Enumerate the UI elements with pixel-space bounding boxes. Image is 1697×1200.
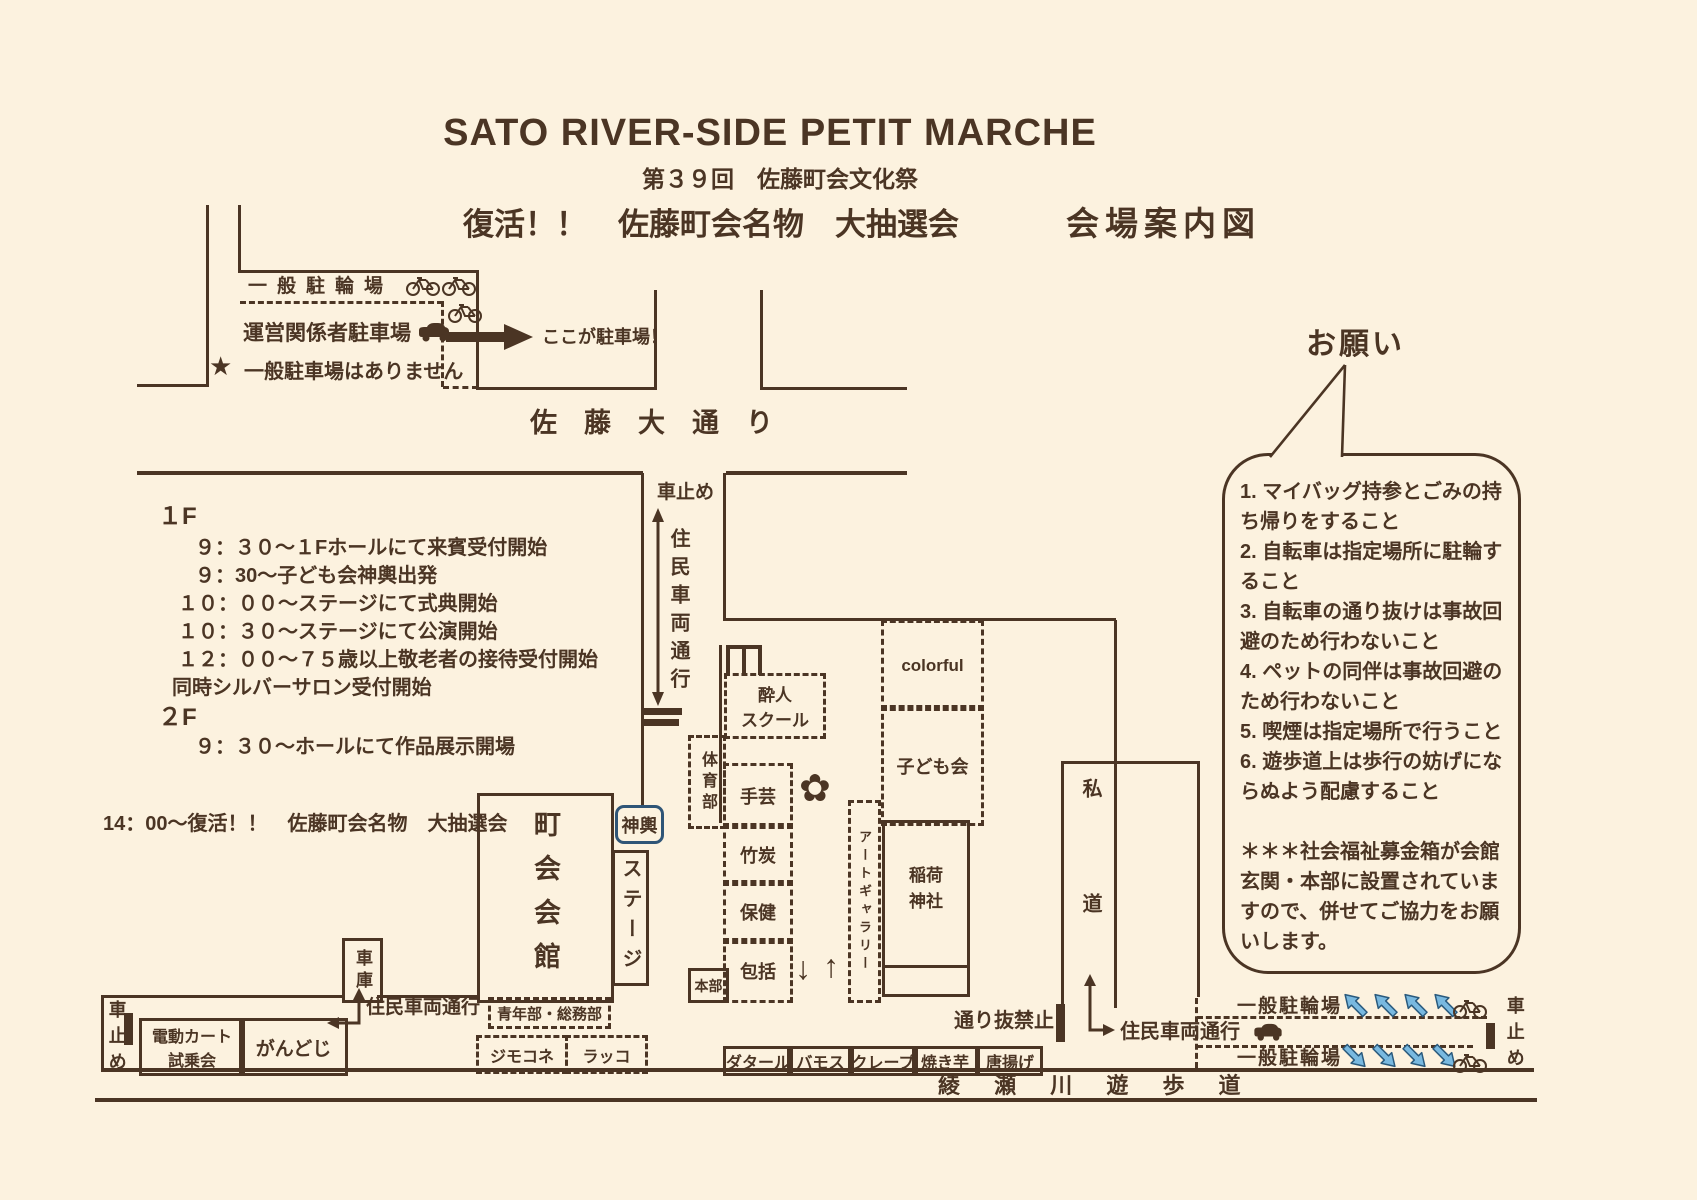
raffle-time-note: 14：00～復活！！ 佐藤町会名物 大抽選会 (103, 813, 508, 836)
schedule-line: ９：３０～１Fホールにて来賓受付開始 (195, 537, 547, 560)
request-line: 避のため行わないこと (1240, 627, 1516, 657)
bike-flow-arrow-icon (1340, 996, 1370, 1013)
mikoshi-label: 神輿 (622, 812, 658, 838)
road-line (641, 473, 644, 805)
road-line (137, 384, 208, 387)
art-gallery-booth: アートギャラリー (848, 800, 881, 1003)
booth-label: 手芸 (740, 783, 776, 809)
flower-icon: ✿ (799, 768, 831, 812)
request-line: ち帰りをすること (1240, 507, 1516, 537)
bubble-tail (1258, 360, 1358, 460)
stage-label: ステージ (616, 858, 645, 978)
request-line: ため行わないこと (1240, 687, 1516, 717)
request-line: ること (1240, 567, 1516, 597)
turn-arrow-icon (1072, 974, 1116, 1038)
inari-shrine-box: 稲荷 神社 (882, 820, 970, 997)
resident-traffic-label-left: 住民車両通行 (366, 997, 480, 1019)
bike-flow-arrow-icon (1400, 996, 1430, 1013)
walk-down-arrow: ↓ (795, 950, 811, 987)
garage-label: 車庫 (350, 949, 375, 993)
bike-flow-arrow-icon (1340, 1048, 1370, 1065)
bike-lot-label-row1: 一般駐輪場 (1237, 996, 1342, 1018)
road-line (723, 473, 726, 620)
booth-label: スクール (741, 706, 809, 731)
booth-label: 包括 (740, 958, 776, 984)
road-line (760, 290, 763, 389)
request-line: らぬよう配慮すること (1240, 777, 1516, 807)
bike-flow-arrow-icon (1370, 1048, 1400, 1065)
request-line: 3. 自転車の通り抜けは事故回 (1240, 597, 1516, 627)
bike-lot-label-row2: 一般駐輪場 (1237, 1048, 1342, 1070)
request-line: すので、併せてご協力をお願 (1240, 897, 1516, 927)
schedule-1f-heading: １F (158, 503, 197, 531)
bike-flow-arrow-icon (1400, 1048, 1430, 1065)
shugei-booth: 手芸 (723, 763, 793, 829)
booth-label: 青年部・総務部 (497, 1003, 602, 1024)
schedule-line: １０：３０～ステージにて公演開始 (178, 621, 498, 644)
car-stop-label-top: 車止め (657, 482, 714, 504)
request-line: いします。 (1240, 927, 1516, 957)
bicycle-icon (1452, 1050, 1488, 1074)
schedule-line: 同時シルバーサロン受付開始 (172, 677, 432, 700)
bike-flow-arrow-icon (1370, 996, 1400, 1013)
shrine-label: 神社 (909, 889, 943, 915)
hq-label: 本部 (695, 976, 723, 996)
road-line (101, 995, 104, 1071)
shrine-label: 稲荷 (909, 863, 943, 889)
stall-label: 電動カート (152, 1023, 232, 1047)
no-general-parking-note: 一般駐車場はありません (244, 361, 463, 384)
schedule-2f-heading: ２F (158, 704, 197, 732)
booth-label: アートギャラリー (855, 830, 874, 974)
schedule-line: ９：30～子ども会神輿出発 (195, 565, 437, 588)
schedule-line: １２：００～７５歳以上敬老者の接待受付開始 (178, 649, 598, 672)
shrine-inner-line (882, 965, 970, 968)
two-way-arrow-icon (649, 508, 667, 706)
schedule-line: ９：３０～ホールにて作品展示開場 (195, 736, 515, 759)
car-stop-bar (124, 1013, 133, 1045)
stall-label: ジモコネ (490, 1043, 554, 1067)
street-edge (476, 387, 657, 390)
road-line (654, 290, 657, 389)
bicycle-icon (1452, 996, 1488, 1020)
suijin-school-booth: 酔人 スクール (724, 673, 826, 739)
request-line: 2. 自転車は指定場所に駐輪す (1240, 537, 1516, 567)
revival-heading: 復活！！ 佐藤町会名物 大抽選会 (463, 207, 959, 243)
request-line: 6. 遊歩道上は歩行の妨げにな (1240, 747, 1516, 777)
barrier-bar (1056, 1004, 1065, 1042)
dashed-line (443, 386, 478, 389)
colorful-booth: colorful (881, 620, 984, 711)
mikoshi-box: 神輿 (615, 805, 664, 844)
festival-venue-map: SATO RIVER-SIDE PETIT MARCHE 第３９回 佐藤町会文化… (0, 0, 1697, 1200)
houkatsu-booth: 包括 (723, 938, 793, 1003)
request-line: 1. マイバッグ持参とごみの持 (1240, 477, 1516, 507)
hall-building: 町会会館 (477, 793, 614, 1003)
kodomokai-booth: 子ども会 (881, 705, 984, 826)
venue-map-heading: 会場案内図 (1066, 205, 1261, 243)
turn-arrow-icon (325, 988, 365, 1030)
car-stop-label-right: 車止め (1504, 996, 1525, 1074)
car-stop-bar (1486, 1023, 1495, 1049)
booth-label: 竹炭 (740, 842, 776, 868)
road-line (238, 205, 241, 273)
booth-label: 体育部 (695, 751, 719, 814)
festival-subtitle: 第３９回 佐藤町会文化祭 (430, 166, 1130, 192)
gate-icon (726, 645, 762, 675)
staff-parking-label: 運営関係者駐車場 (243, 322, 411, 346)
bicycle-icon (405, 273, 441, 297)
main-title: SATO RIVER-SIDE PETIT MARCHE (420, 112, 1120, 156)
schedule-line: １０：００～ステージにて式典開始 (178, 593, 498, 616)
street-edge (137, 471, 643, 475)
booth-label: colorful (901, 656, 963, 676)
road-line (103, 995, 342, 998)
dashed-line (240, 301, 443, 304)
request-title: お願い (1306, 328, 1405, 363)
stall-label: がんどじ (256, 1034, 331, 1061)
general-bike-parking-label: 一般駐輪場 (248, 276, 393, 298)
hoken-booth: 保健 (723, 880, 793, 944)
parking-direction-arrow-icon (446, 323, 534, 351)
road-block-bars (641, 719, 679, 726)
bicycle-icon (441, 273, 477, 297)
road-block-bars (644, 708, 682, 715)
dashed-line (1195, 998, 1198, 1068)
booth-label: 保健 (740, 899, 776, 925)
riverside-path-label: 綾 瀬 川 遊 歩 道 (938, 1073, 1255, 1098)
takesumi-booth: 竹炭 (723, 823, 793, 886)
request-list: 1. マイバッグ持参とごみの持 ち帰りをすること 2. 自転車は指定場所に駐輪す… (1240, 477, 1516, 957)
seinenbu-booth: 青年部・総務部 (488, 997, 611, 1029)
bicycle-icon (447, 300, 483, 324)
resident-traffic-label-right: 住民車両通行 (1120, 1021, 1240, 1044)
request-line: 5. 喫煙は指定場所で行うこと (1240, 717, 1516, 747)
street-label-sato-odori: 佐 藤 大 通 り (530, 408, 773, 439)
no-through-label: 通り抜禁止 (954, 1010, 1054, 1033)
road-line (1114, 620, 1117, 1008)
request-line: 玄関・本部に設置されていま (1240, 867, 1516, 897)
star-icon: ★ (209, 352, 232, 382)
street-edge (726, 471, 907, 475)
road-line (1197, 763, 1200, 997)
booth-label: 子ども会 (897, 753, 969, 779)
resident-traffic-label-center: 住民車両通行 (666, 528, 689, 696)
stall-label: ラッコ (582, 1043, 630, 1067)
taiiku-booth: 体育部 (688, 735, 726, 829)
street-edge (95, 1098, 1537, 1102)
request-line (1240, 807, 1516, 837)
car-icon (1251, 1022, 1285, 1042)
booth-label: 酔人 (758, 681, 792, 706)
stage-box: ステージ (612, 850, 649, 986)
walk-up-arrow: ↑ (823, 948, 839, 985)
parking-here-note: ここが駐車場！ (542, 327, 668, 348)
request-line: ＊＊＊社会福祉募金箱が会館 (1240, 837, 1516, 867)
hall-label: 町会会館 (526, 810, 565, 986)
request-line: 4. ペットの同伴は事故回避の (1240, 657, 1516, 687)
road-line (1061, 761, 1200, 764)
road-line (1061, 763, 1064, 1008)
street-edge (760, 387, 907, 390)
